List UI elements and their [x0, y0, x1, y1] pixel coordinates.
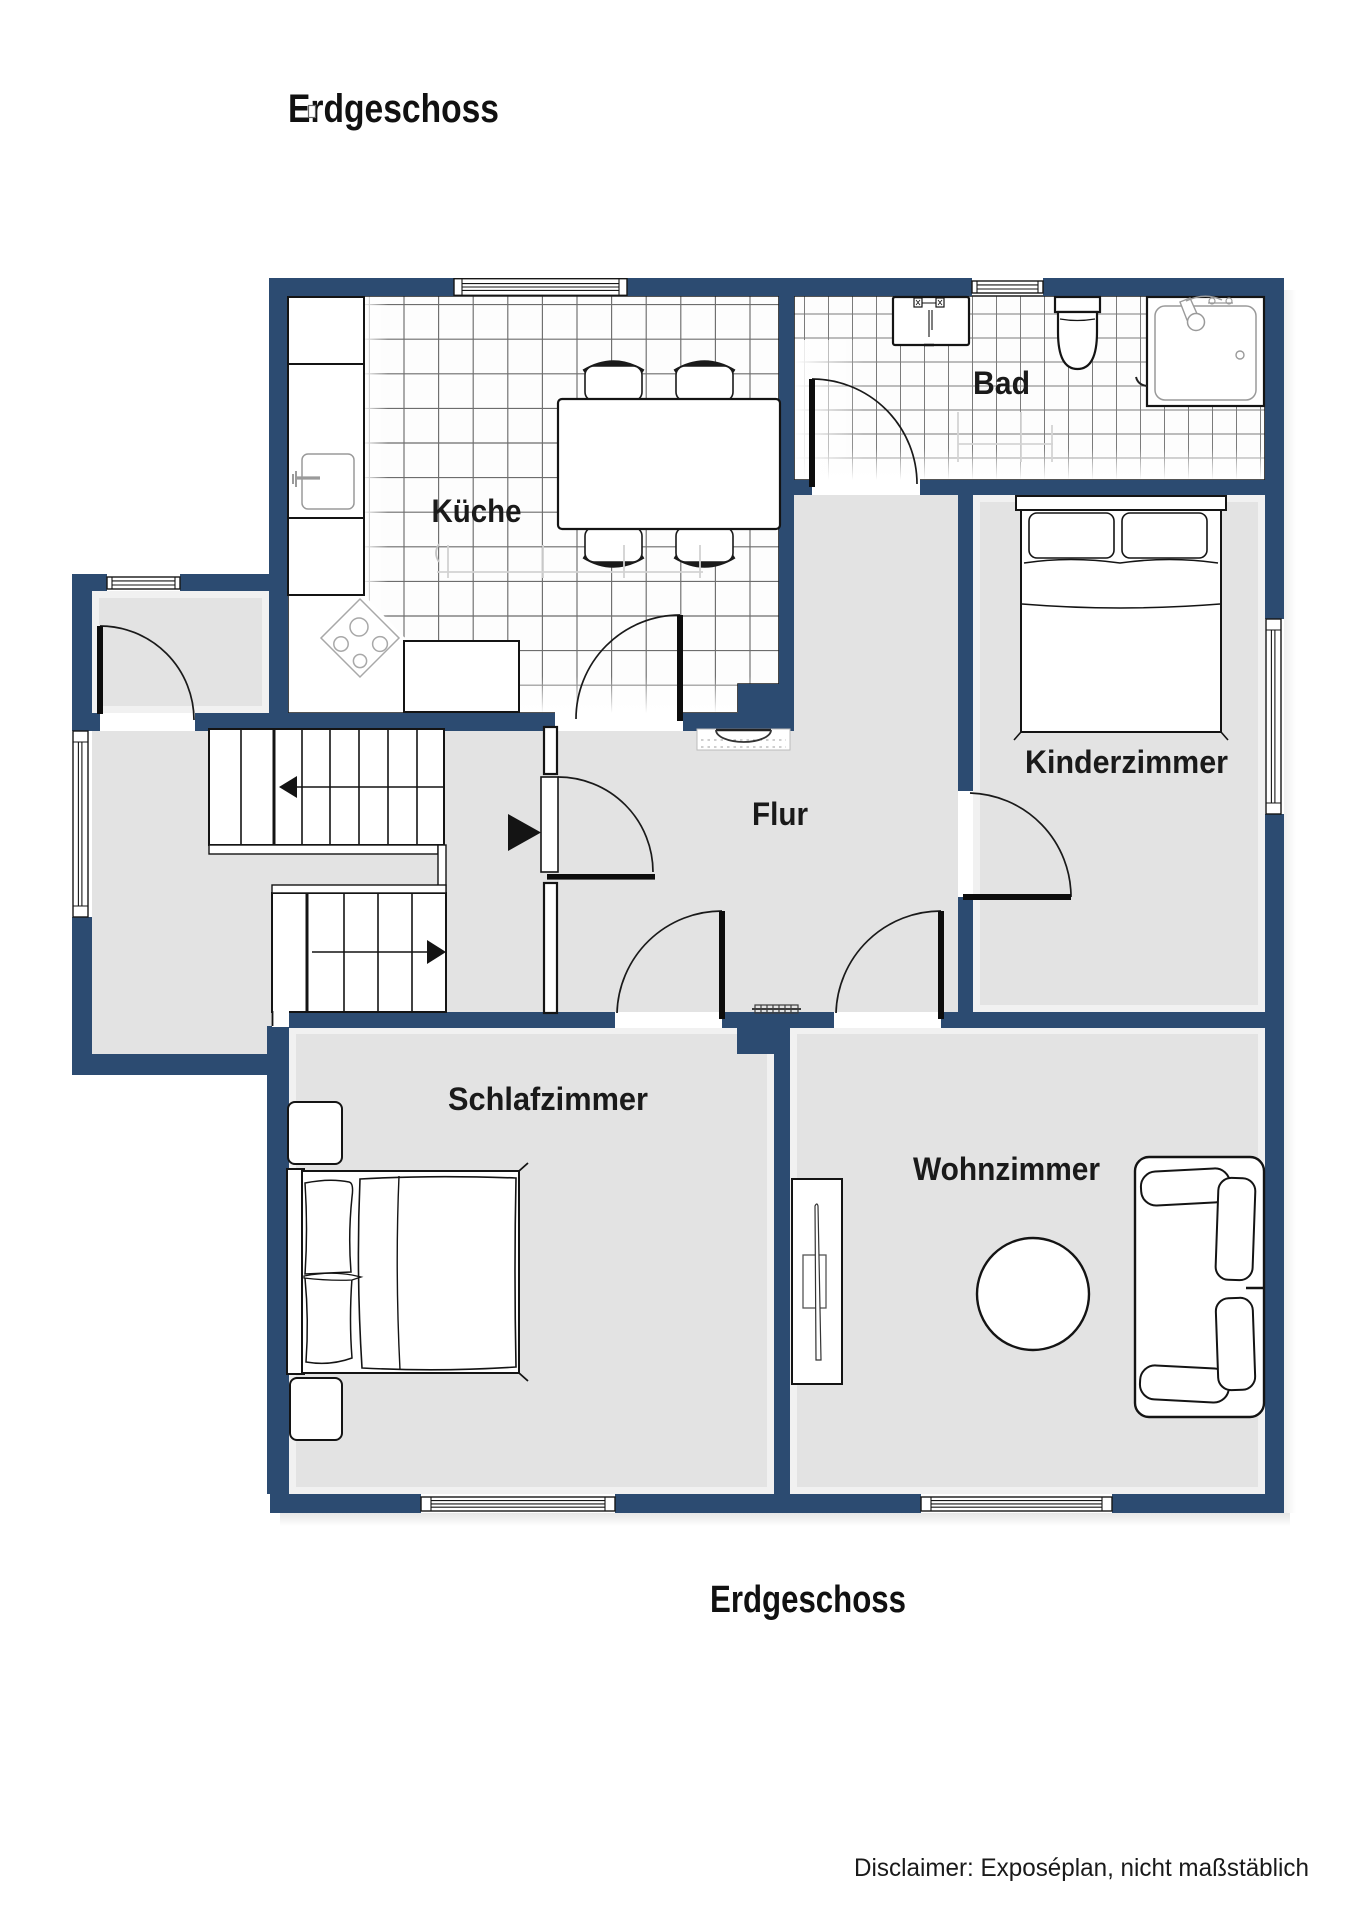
- svg-text:Wohnzimmer: Wohnzimmer: [913, 1151, 1100, 1187]
- svg-text:Bad: Bad: [973, 365, 1030, 401]
- svg-text:Disclaimer: Exposéplan, nicht: Disclaimer: Exposéplan, nicht maßstäblic…: [854, 1854, 1309, 1882]
- svg-text:Flur: Flur: [752, 796, 808, 832]
- svg-text:Kinderzimmer: Kinderzimmer: [1025, 744, 1228, 780]
- svg-text:Küche: Küche: [432, 493, 522, 529]
- svg-text:Schlafzimmer: Schlafzimmer: [448, 1081, 648, 1117]
- svg-text:Erdgeschoss: Erdgeschoss: [288, 87, 499, 131]
- svg-text:Erdgeschoss: Erdgeschoss: [710, 1579, 906, 1621]
